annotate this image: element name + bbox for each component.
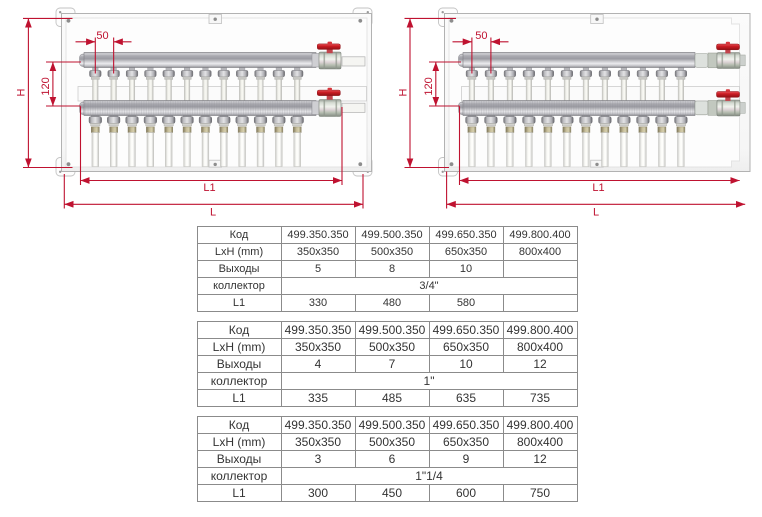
svg-text:H: H xyxy=(397,88,409,96)
svg-text:L: L xyxy=(593,206,599,218)
svg-text:H: H xyxy=(16,88,28,96)
svg-text:120: 120 xyxy=(423,77,435,95)
svg-text:120: 120 xyxy=(40,77,52,95)
svg-text:L1: L1 xyxy=(592,182,604,194)
svg-text:L1: L1 xyxy=(203,182,215,194)
svg-text:50: 50 xyxy=(475,30,487,42)
svg-text:50: 50 xyxy=(96,30,108,42)
svg-text:L: L xyxy=(210,206,216,218)
